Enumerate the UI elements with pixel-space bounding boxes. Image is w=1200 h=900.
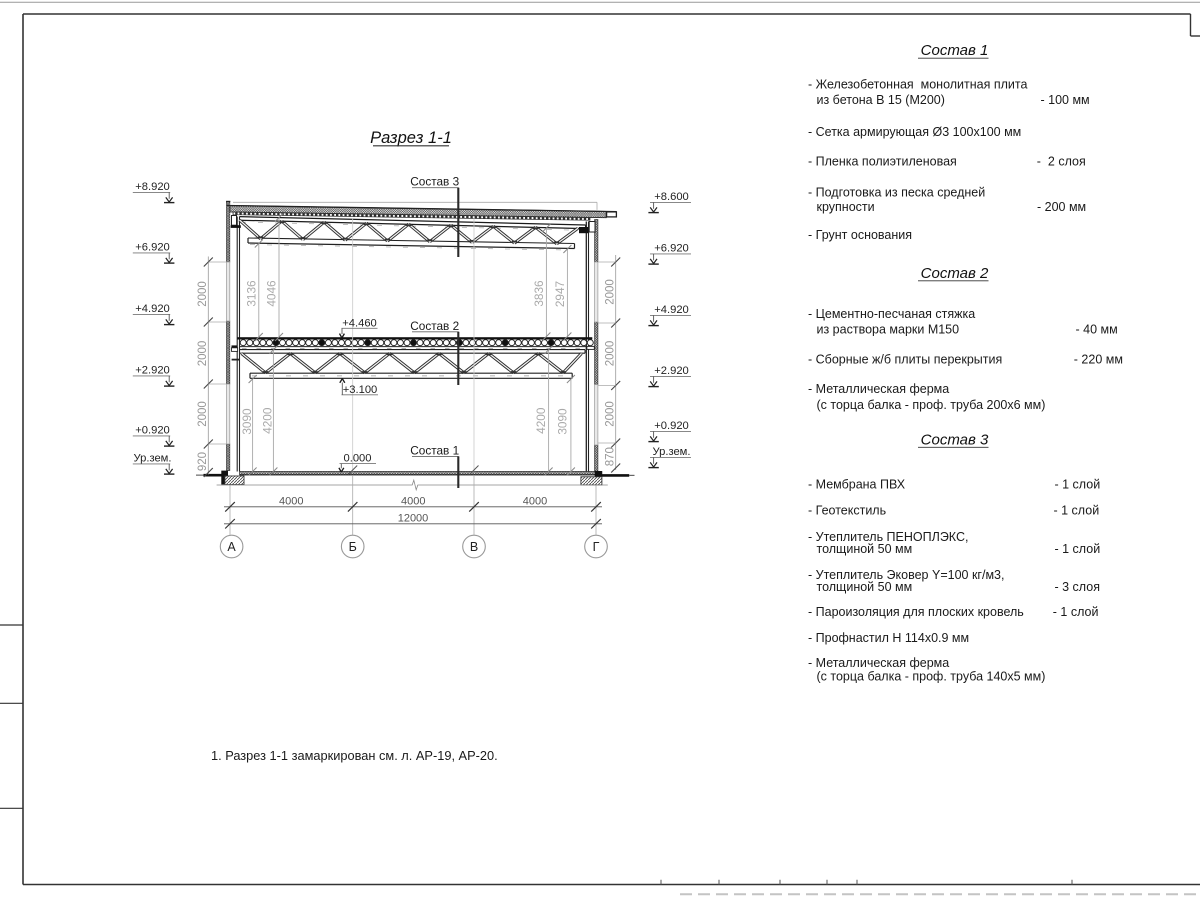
svg-text:- Пароизоляция для плоских кро: - Пароизоляция для плоских кровель — [808, 605, 1024, 619]
svg-text:- 40 мм: - 40 мм — [1076, 323, 1118, 337]
svg-text:4000: 4000 — [279, 495, 303, 507]
svg-text:Состав 1: Состав 1 — [921, 42, 989, 59]
svg-text:12000: 12000 — [398, 512, 429, 524]
svg-text:- 2 слоя: - 2 слоя — [1037, 155, 1086, 169]
svg-text:+8.600: +8.600 — [654, 191, 689, 203]
svg-text:Ур.зем.: Ур.зем. — [653, 446, 691, 458]
svg-text:+6.920: +6.920 — [654, 243, 689, 255]
svg-text:- Сетка армирующая Ø3 100х100: - Сетка армирующая Ø3 100х100 мм — [808, 125, 1021, 139]
svg-text:Состав 2: Состав 2 — [921, 265, 989, 282]
svg-text:(с торца балка - проф. труба 2: (с торца балка - проф. труба 200х6 мм) — [817, 398, 1046, 412]
svg-text:2947: 2947 — [553, 281, 567, 307]
svg-text:толщиной 50 мм: толщиной 50 мм — [817, 542, 913, 556]
svg-text:- 1 слой: - 1 слой — [1055, 478, 1101, 492]
svg-text:А: А — [227, 540, 236, 554]
svg-text:- Железобетонная монолитная п: - Железобетонная монолитная плита — [808, 78, 1027, 92]
svg-text:толщиной 50 мм: толщиной 50 мм — [817, 580, 913, 594]
svg-text:- 100 мм: - 100 мм — [1041, 93, 1090, 107]
svg-text:+0.920: +0.920 — [135, 425, 170, 437]
svg-text:из раствора марки М150: из раствора марки М150 — [817, 323, 960, 337]
svg-text:- Профнастил Н 114х0.9 мм: - Профнастил Н 114х0.9 мм — [808, 631, 969, 645]
svg-text:2000: 2000 — [197, 341, 209, 367]
svg-text:- 3 слоя: - 3 слоя — [1055, 580, 1100, 594]
svg-text:- Сборные ж/б плиты перекрытия: - Сборные ж/б плиты перекрытия — [808, 352, 1002, 366]
svg-text:3090: 3090 — [555, 408, 569, 435]
svg-text:из бетона В 15 (М200): из бетона В 15 (М200) — [817, 93, 945, 107]
svg-text:Состав 1: Состав 1 — [410, 443, 459, 457]
svg-text:2000: 2000 — [605, 401, 617, 427]
svg-text:4000: 4000 — [401, 495, 425, 507]
svg-text:- 220 мм: - 220 мм — [1074, 352, 1123, 366]
svg-text:1. Разрез 1-1 замаркирован см.: 1. Разрез 1-1 замаркирован см. л. АР-19,… — [211, 748, 498, 763]
svg-text:+8.920: +8.920 — [135, 181, 170, 193]
svg-text:4000: 4000 — [523, 495, 547, 507]
svg-text:- Геотекстиль: - Геотекстиль — [808, 503, 886, 517]
svg-text:2000: 2000 — [197, 401, 209, 427]
svg-text:- 1 слой: - 1 слой — [1053, 605, 1099, 619]
svg-text:- Металлическая ферма: - Металлическая ферма — [808, 382, 949, 396]
svg-text:Состав 2: Состав 2 — [410, 319, 459, 333]
svg-text:Состав 3: Состав 3 — [410, 175, 459, 189]
svg-text:+6.920: +6.920 — [135, 242, 170, 254]
svg-text:- 1 слой: - 1 слой — [1054, 503, 1100, 517]
svg-text:- Мембрана ПВХ: - Мембрана ПВХ — [808, 478, 906, 492]
svg-text:+4.920: +4.920 — [135, 303, 170, 315]
svg-text:0.000: 0.000 — [344, 453, 372, 465]
svg-text:(с торца балка - проф. труба 1: (с торца балка - проф. труба 140х5 мм) — [817, 669, 1046, 683]
svg-text:4200: 4200 — [534, 407, 548, 434]
svg-text:3836: 3836 — [532, 280, 546, 307]
svg-text:4200: 4200 — [260, 407, 274, 434]
svg-text:+2.920: +2.920 — [135, 365, 170, 377]
svg-text:Г: Г — [593, 540, 600, 554]
svg-text:- Пленка полиэтиленовая: - Пленка полиэтиленовая — [808, 155, 957, 169]
svg-text:2000: 2000 — [197, 281, 209, 307]
svg-text:+4.920: +4.920 — [654, 304, 689, 316]
svg-text:+2.920: +2.920 — [654, 365, 689, 377]
svg-text:- 200 мм: - 200 мм — [1037, 200, 1086, 214]
svg-text:+0.920: +0.920 — [654, 420, 689, 432]
svg-text:- Подготовка из песка средней: - Подготовка из песка средней — [808, 185, 985, 199]
svg-text:3090: 3090 — [240, 408, 254, 435]
svg-text:- 1 слой: - 1 слой — [1055, 542, 1101, 556]
svg-text:- Металлическая ферма: - Металлическая ферма — [808, 656, 949, 670]
svg-text:В: В — [470, 540, 478, 554]
svg-text:+4.460: +4.460 — [342, 317, 377, 329]
svg-text:Б: Б — [349, 540, 357, 554]
svg-text:4046: 4046 — [265, 280, 279, 307]
svg-text:870: 870 — [605, 447, 617, 466]
svg-text:- Цементно-песчаная стяжка: - Цементно-песчаная стяжка — [808, 307, 975, 321]
svg-text:2000: 2000 — [605, 341, 617, 367]
svg-text:Разрез 1-1: Разрез 1-1 — [370, 129, 452, 147]
svg-text:- Грунт основания: - Грунт основания — [808, 228, 912, 242]
svg-text:Ур.зем.: Ур.зем. — [134, 453, 172, 465]
svg-text:Состав 3: Состав 3 — [921, 431, 989, 448]
svg-text:крупности: крупности — [817, 200, 875, 214]
svg-text:3136: 3136 — [244, 280, 258, 307]
svg-text:2000: 2000 — [605, 279, 617, 305]
svg-text:920: 920 — [197, 452, 209, 471]
